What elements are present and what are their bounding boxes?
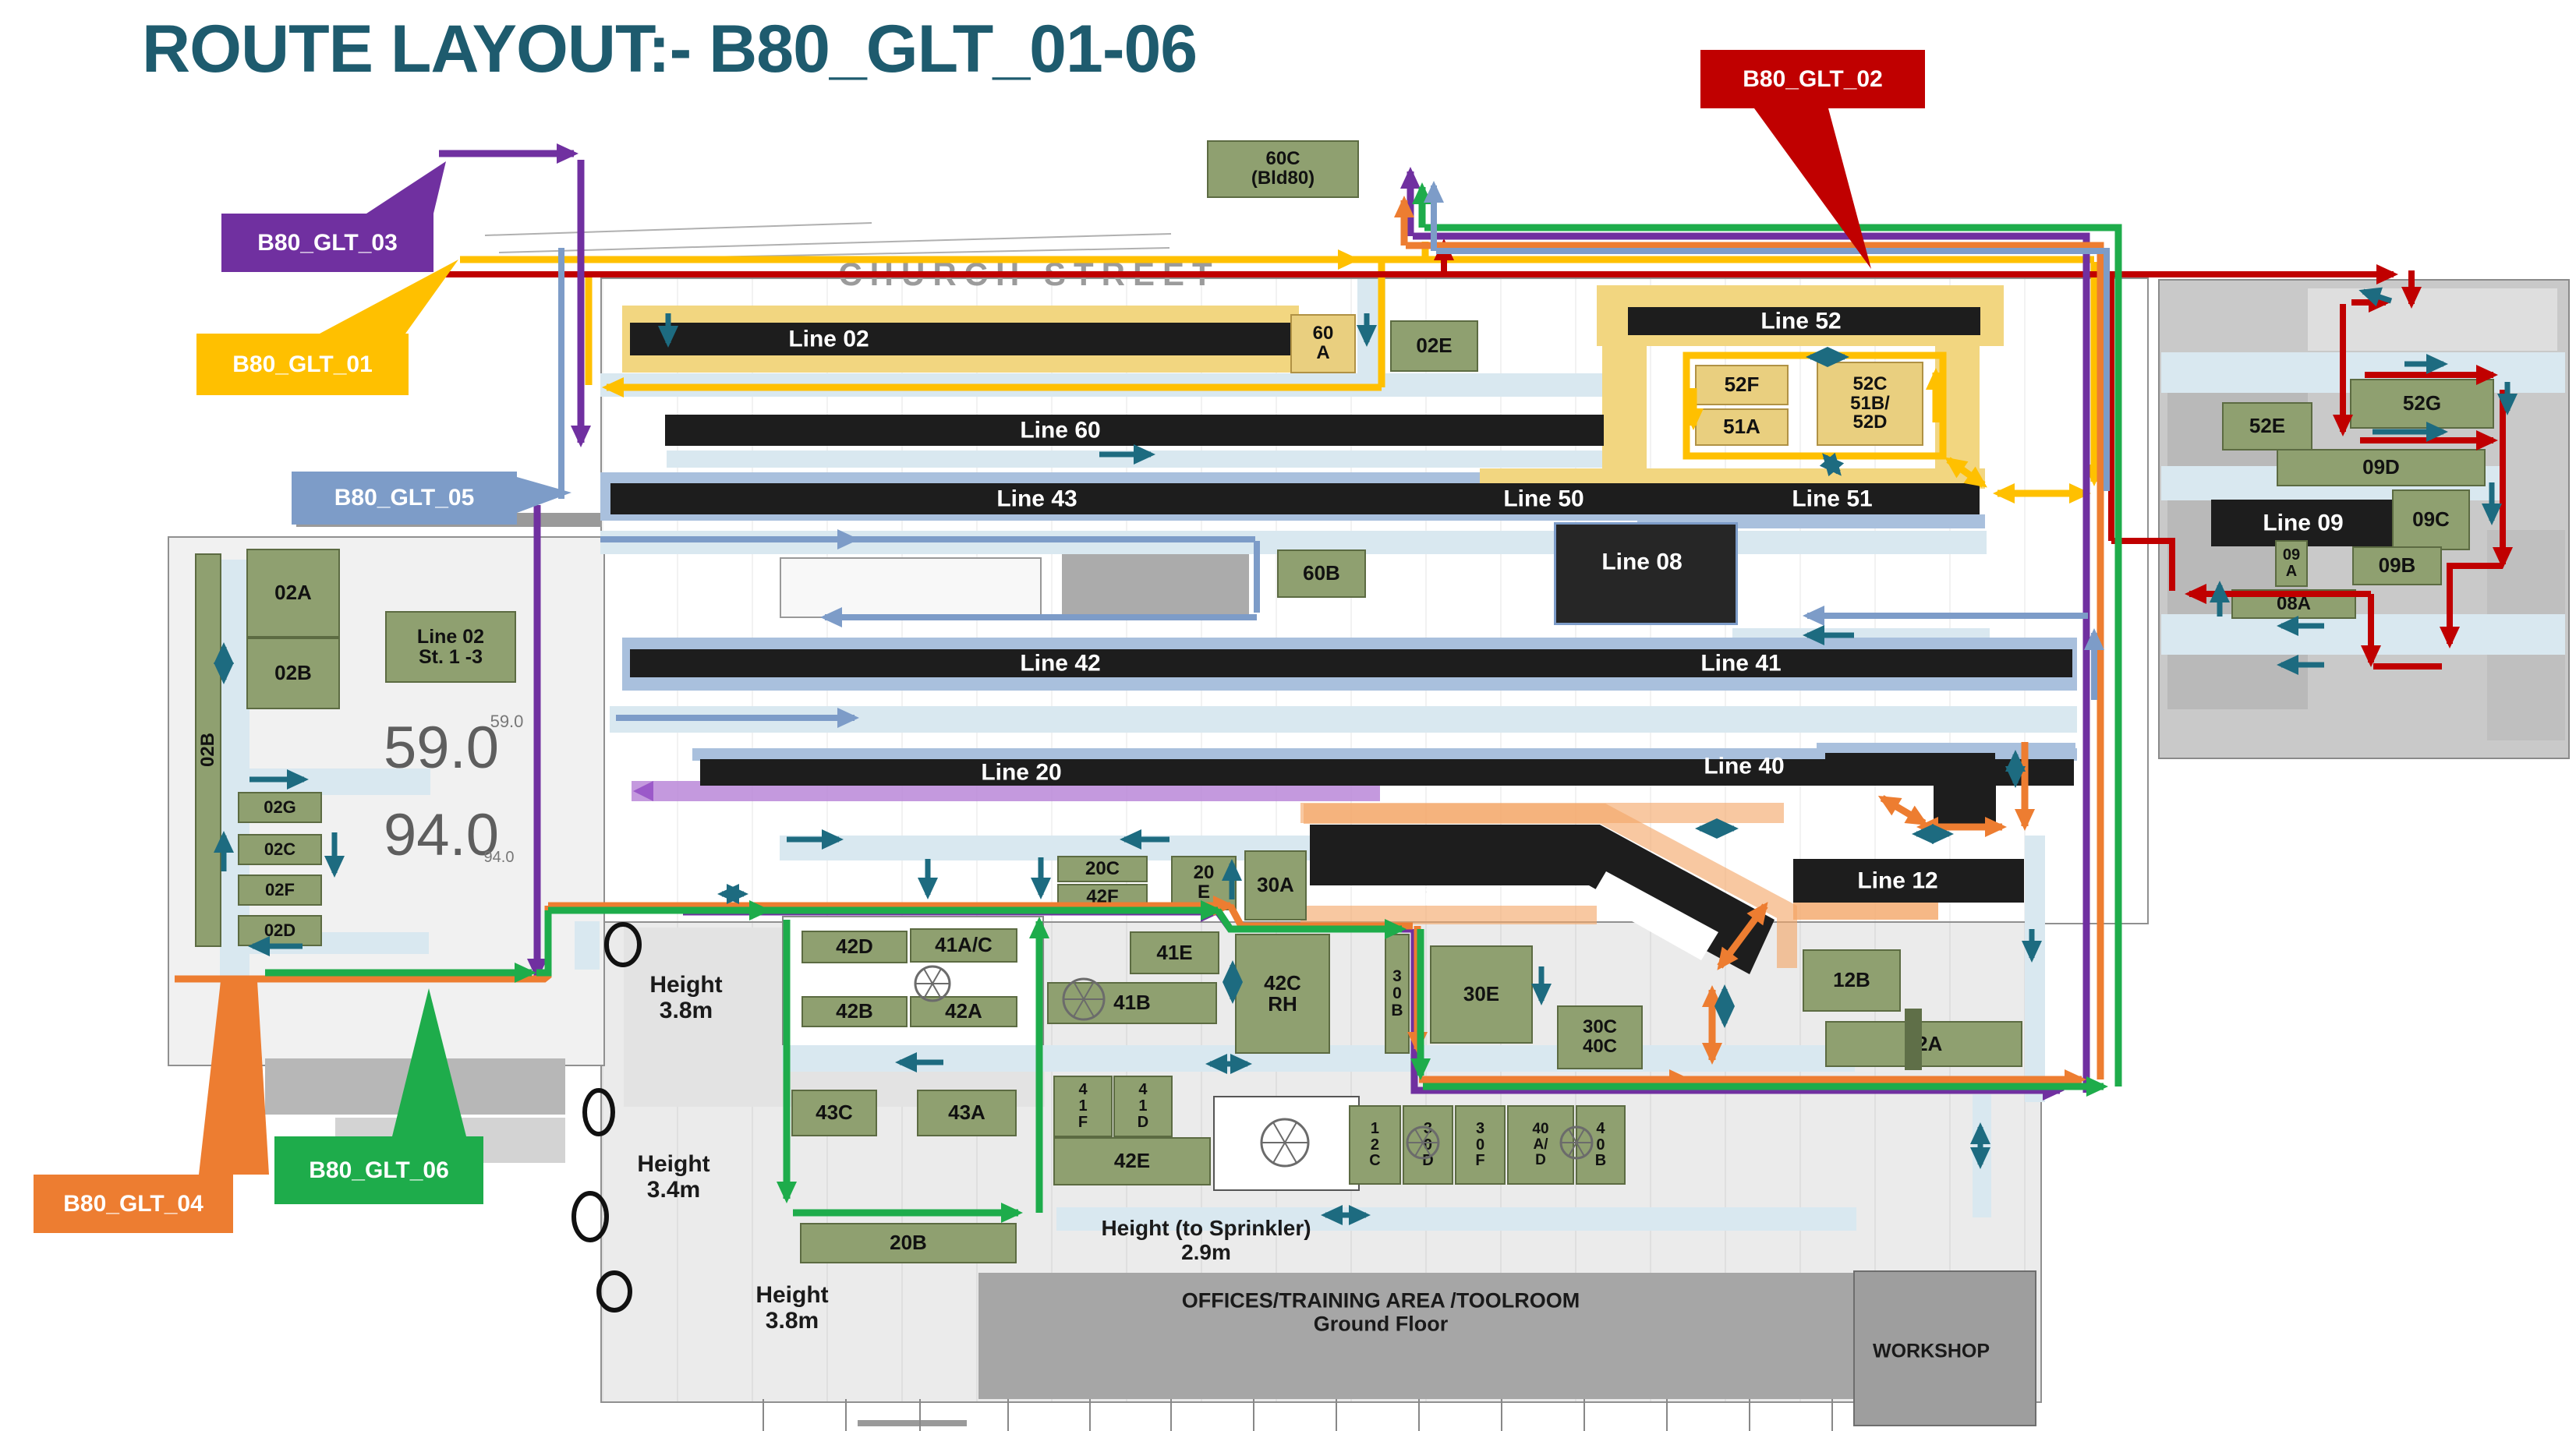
purple-band-arrow-icon [633, 781, 653, 801]
callout-glt02: B80_GLT_02 [1700, 50, 1925, 108]
fan-symbol-icon [1407, 1127, 1438, 1158]
route-red-segment [2450, 566, 2503, 644]
line-label-line52: Line 52 [1760, 309, 1841, 334]
line-label-line02: Line 02 [788, 327, 869, 352]
callout-pointer-icon [366, 161, 446, 214]
line-label-line30: Line 30 [1410, 885, 1490, 911]
column-marker-icon [574, 1193, 607, 1240]
route-yellow-segment [1686, 355, 1943, 456]
text-workshop: WORKSHOP [1873, 1341, 1990, 1362]
line-label-line51: Line 51 [1792, 486, 1872, 512]
route-orange-segment [175, 906, 548, 979]
callout-pointer-icon [199, 981, 269, 1175]
fan-symbol-icon [1063, 979, 1104, 1019]
cad-dimension-line [485, 223, 872, 235]
callout-glt01: B80_GLT_01 [196, 334, 409, 395]
text-height: Height 3.8m [755, 1282, 828, 1334]
line-label-line08: Line 08 [1601, 549, 1682, 575]
text-heighttosprinkler: Height (to Sprinkler) 2.9m [1101, 1217, 1311, 1265]
text-height: Height 3.8m [649, 972, 722, 1023]
line-label-line60: Line 60 [1020, 418, 1100, 443]
text-height: Height 3.4m [637, 1151, 709, 1203]
line-label-line40: Line 40 [1704, 754, 1784, 779]
line-label-line20: Line 20 [981, 760, 1061, 786]
line-label-line12: Line 12 [1857, 868, 1937, 894]
column-marker-icon [585, 1090, 613, 1134]
fan-symbol-icon [915, 966, 950, 1001]
fan-symbol-icon [1261, 1119, 1308, 1166]
route-orange-segment [1882, 798, 1924, 823]
line-label-line42: Line 42 [1020, 651, 1100, 677]
cad-dimension-line [706, 248, 1169, 257]
column-marker-icon [607, 924, 639, 965]
callout-glt04: B80_GLT_04 [34, 1175, 233, 1233]
callout-glt03: B80_GLT_03 [221, 214, 433, 272]
line-label-line09: Line 09 [2263, 511, 2343, 536]
route-orange-segment [1230, 906, 1413, 926]
line-label-line43: Line 43 [996, 486, 1077, 512]
fan-symbol-icon [1561, 1127, 1592, 1158]
route-layout-diagram: ROUTE LAYOUT:- B80_GLT_01-06 60C (Bld80)… [0, 0, 2576, 1431]
line-label-line50: Line 50 [1503, 486, 1583, 512]
callout-pointer-icon [392, 988, 466, 1136]
route-green-segment [1218, 910, 1402, 929]
callout-glt06: B80_GLT_06 [274, 1136, 483, 1204]
route-yellow-segment [1948, 460, 1983, 485]
column-marker-icon [599, 1273, 630, 1310]
line-label-line41: Line 41 [1700, 651, 1781, 677]
callout-glt05: B80_GLT_05 [292, 472, 517, 525]
text-officestrainingareatoolroom: OFFICES/TRAINING AREA /TOOLROOM Ground F… [1182, 1289, 1580, 1335]
